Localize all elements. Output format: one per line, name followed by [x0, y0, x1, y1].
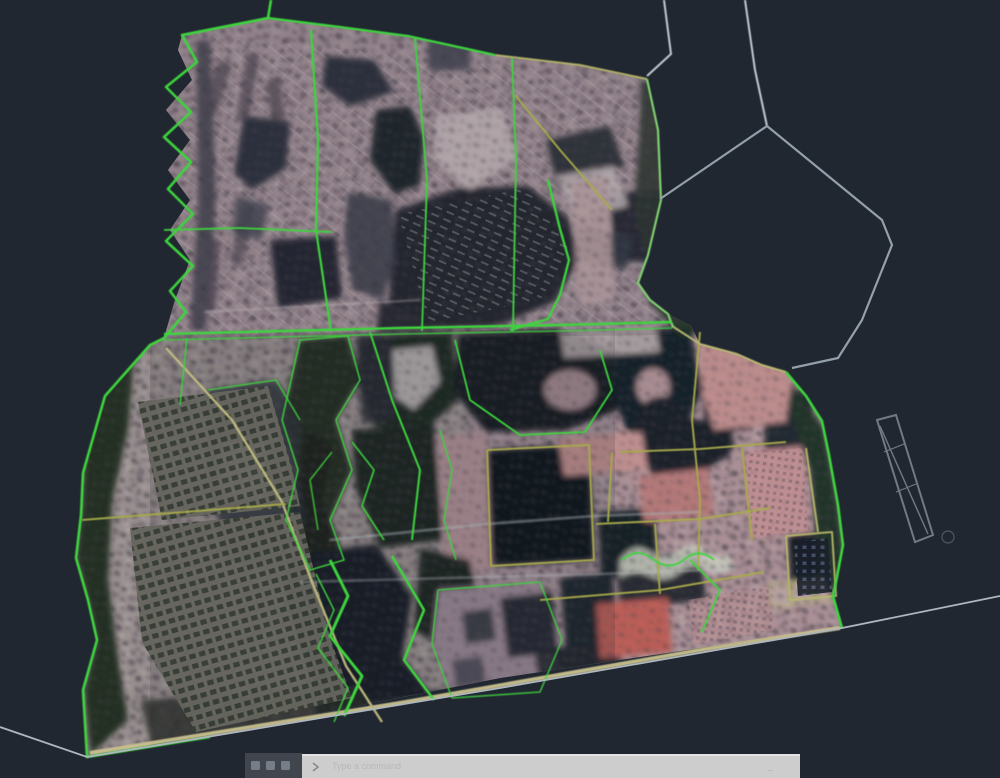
svg-text:Type a command: Type a command	[332, 761, 401, 771]
svg-text:..: ..	[768, 763, 773, 773]
